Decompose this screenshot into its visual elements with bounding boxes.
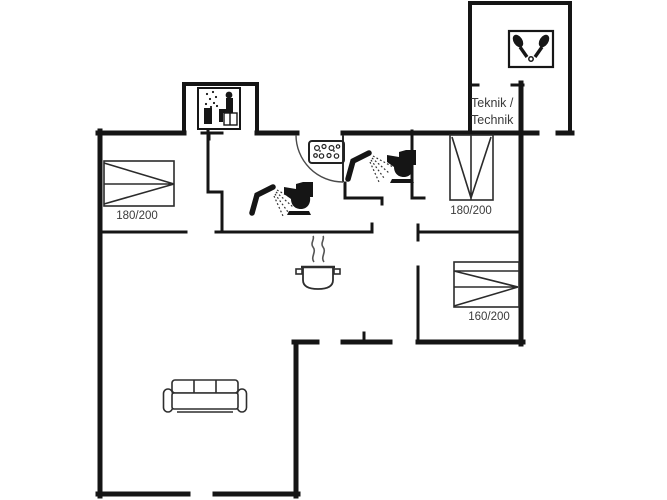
table-tennis-icon: [509, 31, 553, 67]
double-bed: [104, 161, 174, 206]
double-bed: [454, 262, 519, 307]
bed-size-label: 180/200: [450, 205, 492, 217]
sauna-icon: [198, 88, 240, 129]
shower-icon: [348, 153, 393, 182]
toilet-icon: [284, 182, 313, 215]
floorplan: 180/200 180/200 160/200 Teknik / Technik: [0, 0, 667, 500]
technical-room-label: Teknik /: [471, 96, 514, 110]
double-bed: [450, 135, 493, 200]
floorplan-drawing: 180/200 180/200 160/200 Teknik / Technik: [0, 0, 667, 500]
sofa: [164, 380, 247, 412]
cooking-pot-icon: [296, 236, 340, 289]
dishwasher-icon: [309, 141, 344, 163]
bed-size-label: 160/200: [468, 311, 510, 323]
technical-room-label: Technik: [471, 113, 514, 127]
bed-size-label: 180/200: [116, 210, 158, 222]
walls: [98, 3, 572, 496]
